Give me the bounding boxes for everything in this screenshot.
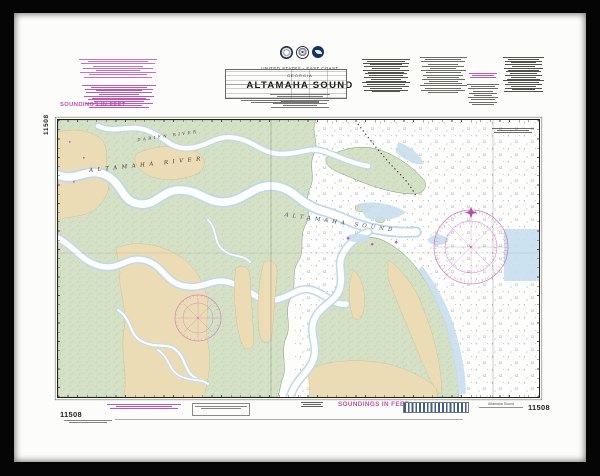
left-note-magenta-1	[76, 59, 160, 78]
in-chart-note	[491, 128, 535, 133]
chart-number-bottom-left: 11508	[60, 410, 82, 419]
bottom-small-note	[300, 402, 324, 407]
bottom-border-ticks	[58, 395, 539, 397]
tide-table	[225, 69, 347, 99]
coast-survey-seal-icon	[296, 46, 309, 59]
left-border-ticks	[58, 120, 60, 397]
table-caption-lines	[238, 100, 332, 103]
bottom-note-magenta	[105, 404, 183, 409]
right-border-ticks	[537, 120, 539, 397]
chart-number-bottom-right: 11508	[528, 403, 550, 412]
notes-column-2	[466, 84, 500, 105]
abbreviations-column	[360, 59, 412, 92]
bottom-note-box-lines	[193, 406, 249, 409]
imprint-block: Altamaha Sound	[478, 402, 524, 408]
notes-column-3	[502, 57, 545, 92]
soundings-note-bottom: SOUNDINGS IN FEET	[338, 401, 409, 408]
imprint-subline	[478, 407, 524, 408]
framed-chart-photo: UNITED STATES - EAST COAST GEORGIA ALTAM…	[0, 0, 600, 476]
notes-column-1	[418, 57, 468, 93]
land-compass-rose-icon	[175, 295, 221, 341]
agency-seals	[280, 46, 324, 59]
bottom-fineprint-line	[115, 419, 463, 420]
right-note-magenta	[468, 73, 498, 78]
soundings-note-top: SOUNDINGS IN FEET	[60, 102, 126, 108]
edition-note-lines	[62, 420, 114, 423]
chart-map: 7 12	[57, 119, 540, 398]
logarithmic-speed-scale	[403, 402, 469, 413]
imprint-title: Altamaha Sound	[478, 402, 524, 406]
bottom-note-box	[192, 403, 250, 416]
noaa-seal-icon	[312, 46, 324, 58]
nautical-map-svg: 7 12	[58, 120, 539, 397]
commerce-seal-icon	[280, 46, 293, 59]
top-border-ticks	[58, 120, 539, 122]
chart-number-side: 11508	[43, 111, 50, 135]
